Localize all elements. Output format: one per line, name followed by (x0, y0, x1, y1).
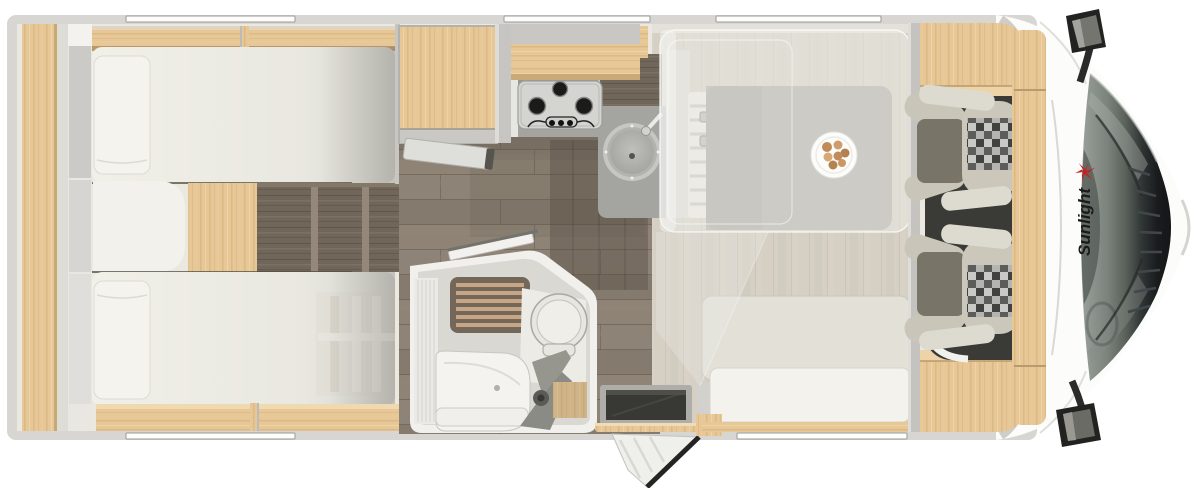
svg-text:Sunlight: Sunlight (1075, 187, 1094, 256)
